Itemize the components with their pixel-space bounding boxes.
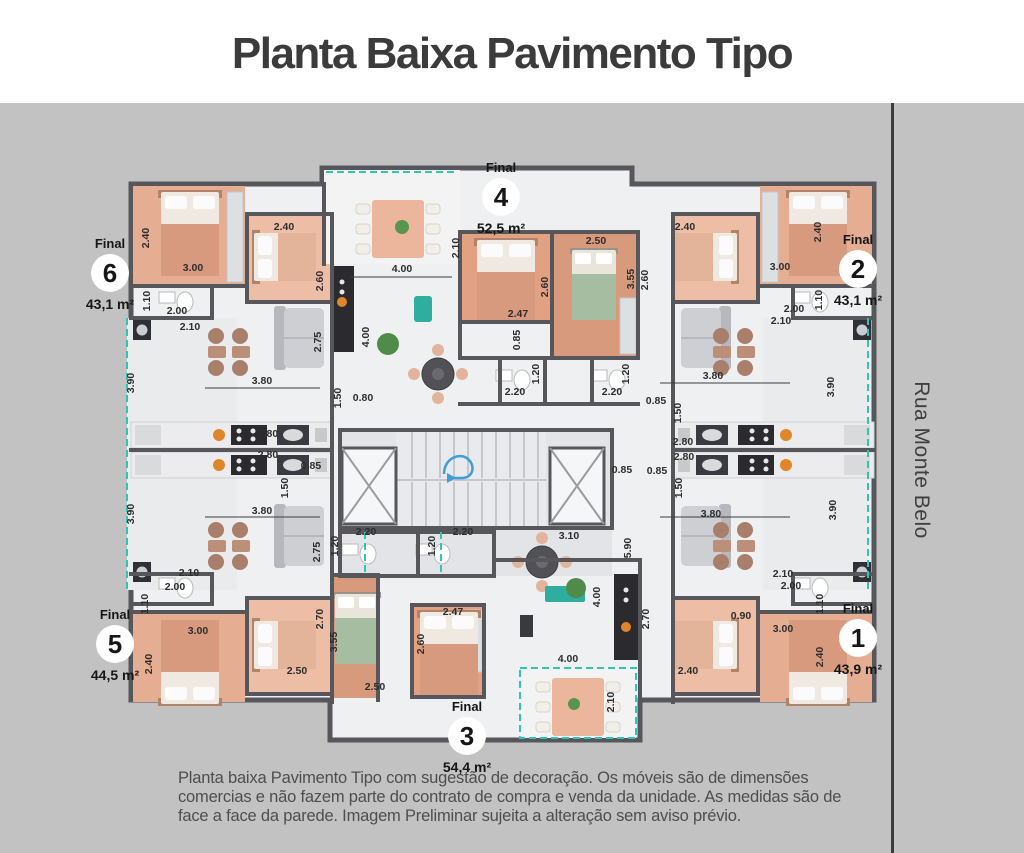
dimension-label: 3.00	[183, 262, 204, 274]
dimension-label: 2.75	[311, 542, 323, 563]
unit-number: 3	[460, 721, 474, 752]
dimension-label: 2.60	[639, 270, 651, 291]
unit-number: 4	[494, 182, 508, 213]
dimension-label: 3.80	[252, 505, 273, 517]
elevator-left	[342, 448, 396, 524]
dimension-label: 0.85	[612, 464, 633, 476]
dimension-label: 2.70	[640, 609, 652, 630]
unit-number: 1	[851, 623, 865, 654]
dimension-label: 3.00	[773, 623, 794, 635]
dimension-label: 1.20	[426, 536, 438, 557]
dimension-label: 0.85	[511, 330, 523, 351]
dimension-label: 2.60	[314, 271, 326, 292]
dimension-label: 2.40	[274, 221, 295, 233]
page-title: Planta Baixa Pavimento Tipo	[232, 25, 792, 79]
dimension-label: 2.20	[602, 386, 623, 398]
dimension-label: 0.80	[353, 392, 374, 404]
dimension-label: 2.10	[450, 238, 462, 259]
dimension-label: 3.90	[125, 373, 137, 394]
dimension-label: 2.10	[771, 315, 792, 327]
unit-number: 6	[103, 258, 117, 289]
unit-number: 2	[851, 254, 865, 285]
dimension-label: 3.80	[703, 370, 724, 382]
unit-area: 44,5 m²	[75, 667, 155, 683]
dimension-label: 2.10	[180, 321, 201, 333]
unit-badge-final-2: Final 2 43,1 m²	[818, 232, 898, 308]
street-divider-line	[891, 103, 894, 853]
dimension-label: 1.50	[279, 478, 291, 499]
dimension-label: 3.55	[328, 632, 340, 653]
dimension-label: 2.70	[314, 609, 326, 630]
unit-number-circle: 5	[96, 625, 134, 663]
dimension-label: 2.80	[673, 436, 694, 448]
dimension-label: 2.47	[508, 308, 529, 320]
unit-final-label: Final	[818, 232, 898, 247]
unit-area: 43,1 m²	[70, 296, 150, 312]
disclaimer-text: Planta baixa Pavimento Tipo com sugestão…	[178, 769, 854, 826]
unit-final-label: Final	[427, 699, 507, 714]
dimension-label: 0.85	[647, 465, 668, 477]
unit-badge-final-6: Final 6 43,1 m²	[70, 236, 150, 312]
dimension-label: 2.50	[586, 235, 607, 247]
unit-number-circle: 6	[91, 254, 129, 292]
dimension-label: 5.90	[622, 538, 634, 559]
dimension-label: 1.50	[332, 388, 344, 409]
dimension-label: 4.00	[392, 263, 413, 275]
dimension-label: 4.00	[360, 327, 372, 348]
unit-final-label: Final	[461, 160, 541, 175]
dimension-label: 2.60	[415, 634, 427, 655]
dimension-label: 0.90	[731, 610, 752, 622]
dimension-label: 0.85	[646, 395, 667, 407]
dimension-label: 2.47	[443, 606, 464, 618]
dimension-label: 2.00	[165, 581, 186, 593]
unit-badge-final-4: Final 4 52,5 m²	[461, 160, 541, 236]
dimension-label: 2.00	[784, 303, 805, 315]
unit-final-label: Final	[818, 601, 898, 616]
dimension-label: 1.20	[329, 536, 341, 557]
dimension-label: 2.40	[678, 665, 699, 677]
dimension-label: 3.90	[125, 504, 137, 525]
dimension-label: 2.20	[505, 386, 526, 398]
street-label: Rua Monte Belo	[909, 381, 933, 539]
unit-final-label: Final	[70, 236, 150, 251]
dimension-label: 2.10	[773, 568, 794, 580]
dimension-label: 1.50	[673, 478, 685, 499]
unit-badge-final-3: Final 3 54,4 m²	[427, 699, 507, 775]
dimension-label: 3.00	[188, 625, 209, 637]
dimension-label: 2.50	[365, 681, 386, 693]
dimension-label: 2.20	[356, 526, 377, 538]
unit-number-circle: 4	[482, 178, 520, 216]
dimension-label: 1.50	[672, 403, 684, 424]
dimension-label: 4.00	[558, 653, 579, 665]
unit-number-circle: 3	[448, 717, 486, 755]
dimension-label: 3.00	[770, 261, 791, 273]
dimension-label: 2.50	[287, 665, 308, 677]
dimension-label: 2.10	[179, 567, 200, 579]
dimension-label: 2.75	[312, 332, 324, 353]
dimension-label: 2.00	[781, 580, 802, 592]
unit-number-circle: 2	[839, 250, 877, 288]
dimension-label: 2.80	[258, 428, 279, 440]
unit-final-label: Final	[75, 607, 155, 622]
unit-number-circle: 1	[839, 619, 877, 657]
dimension-label: 2.40	[675, 221, 696, 233]
unit-badge-final-1: Final 1 43,9 m²	[818, 601, 898, 677]
header: Planta Baixa Pavimento Tipo	[0, 0, 1024, 103]
dimension-label: 2.20	[453, 526, 474, 538]
dimension-label: 2.10	[605, 692, 617, 713]
unit-badge-final-5: Final 5 44,5 m²	[75, 607, 155, 683]
dimension-label: 1.20	[530, 364, 542, 385]
dimension-label: 2.60	[539, 277, 551, 298]
screenshot-root: Planta Baixa Pavimento Tipo	[0, 0, 1024, 853]
dimension-label: 2.00	[167, 305, 188, 317]
unit-area: 43,9 m²	[818, 661, 898, 677]
unit-area: 43,1 m²	[818, 292, 898, 308]
stairs	[396, 432, 546, 528]
dimension-label: 3.90	[825, 377, 837, 398]
dimension-label: 1.20	[620, 364, 632, 385]
dimension-label: 2.80	[674, 451, 695, 463]
dimension-label: 3.80	[701, 508, 722, 520]
dimension-label: 0.85	[301, 460, 322, 472]
dimension-label: 3.10	[559, 530, 580, 542]
unit-number: 5	[108, 629, 122, 660]
elevator-right	[550, 448, 604, 524]
dimension-label: 3.90	[827, 500, 839, 521]
dimension-label: 3.80	[252, 375, 273, 387]
unit-area: 52,5 m²	[461, 220, 541, 236]
dimension-label: 2.80	[258, 449, 279, 461]
dimension-label: 3.55	[625, 269, 637, 290]
dimension-label: 4.00	[591, 587, 603, 608]
